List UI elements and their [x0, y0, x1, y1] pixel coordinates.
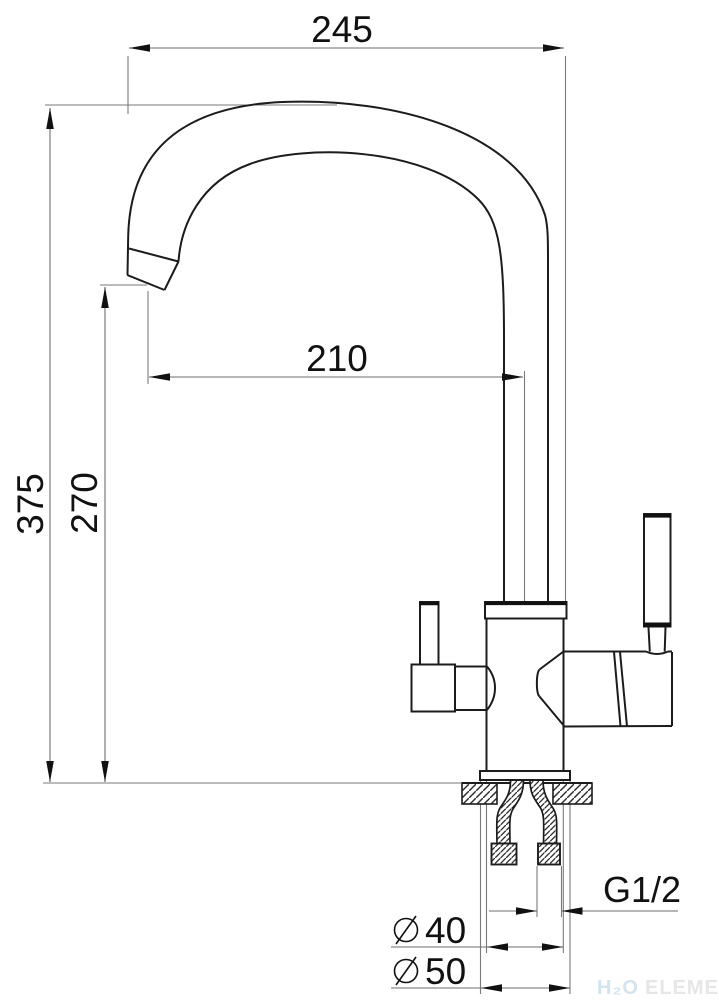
right-valve	[537, 514, 672, 727]
dimension-spout-reach: 210	[149, 338, 523, 381]
dim-spout-reach-label: 210	[306, 338, 368, 379]
watermark-h2o: H₂O	[597, 977, 639, 999]
hose-fitting-left	[492, 844, 517, 865]
dim-body-diameter-label: 40	[425, 910, 466, 951]
faucet-drawing-page: 245 375 270 210 G1/2 40	[0, 0, 719, 1000]
diameter-symbol	[395, 957, 418, 985]
left-handle-hub	[412, 665, 456, 712]
dim-overall-height-label: 375	[10, 473, 51, 535]
base-flange	[480, 771, 570, 780]
diameter-symbol	[395, 916, 418, 944]
brand-watermark: H₂O ELEMENT	[597, 977, 719, 999]
dimension-spout-height: 270	[64, 287, 109, 782]
supply-hoses	[492, 780, 561, 865]
dim-spout-height-label: 270	[64, 472, 105, 534]
watermark-element: ELEMENT	[645, 977, 719, 999]
countertop-section	[462, 783, 592, 804]
dimension-overall-height: 375	[10, 108, 54, 782]
faucet-outline	[127, 102, 672, 780]
dim-thread-size-label: G1/2	[603, 869, 681, 910]
right-handle-lever	[644, 514, 671, 627]
hose-fitting-right	[538, 844, 560, 865]
left-handle	[412, 602, 496, 712]
hose-left	[497, 780, 524, 844]
dim-overall-width-label: 245	[311, 9, 373, 50]
dimension-overall-width: 245	[129, 9, 564, 52]
left-handle-lever	[420, 602, 439, 665]
technical-drawing-canvas: 245 375 270 210 G1/2 40	[0, 0, 719, 1000]
dim-base-diameter-label: 50	[425, 951, 466, 992]
dimension-thread-size: G1/2	[489, 869, 681, 915]
